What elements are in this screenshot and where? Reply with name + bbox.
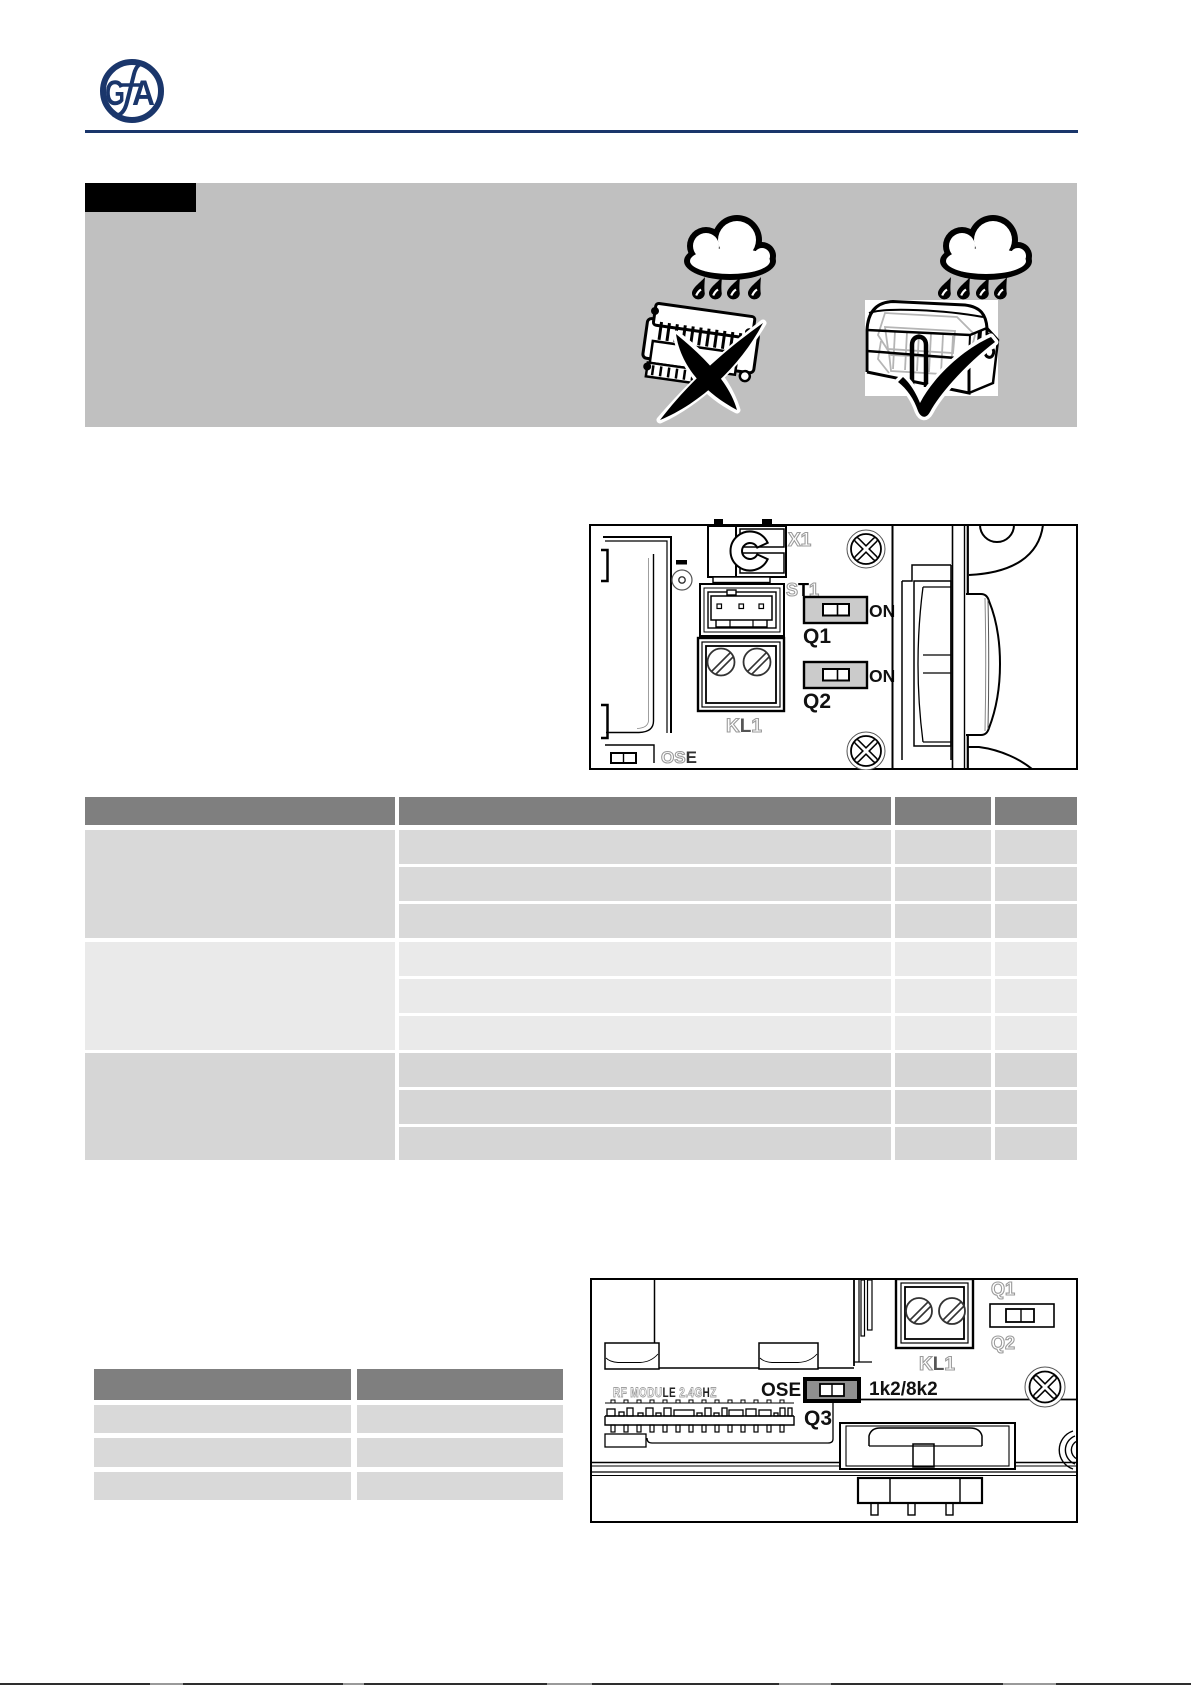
svg-text:ON: ON bbox=[869, 601, 895, 621]
svg-text:Q3: Q3 bbox=[804, 1407, 832, 1430]
svg-text:Q2: Q2 bbox=[991, 1333, 1015, 1353]
svg-text:OSE: OSE bbox=[661, 748, 697, 767]
svg-text:RF MODULE 2.4GHZ: RF MODULE 2.4GHZ bbox=[613, 1384, 717, 1400]
svg-text:KL1: KL1 bbox=[919, 1354, 955, 1375]
svg-text:A: A bbox=[132, 74, 155, 113]
svg-text:Q1: Q1 bbox=[803, 625, 831, 648]
svg-text:KL1: KL1 bbox=[726, 716, 762, 737]
svg-text:Q1: Q1 bbox=[991, 1279, 1015, 1299]
svg-text:OSE: OSE bbox=[761, 1380, 801, 1401]
svg-text:1k2/8k2: 1k2/8k2 bbox=[869, 1379, 938, 1400]
svg-text:ON: ON bbox=[869, 666, 895, 686]
svg-text:X1: X1 bbox=[788, 530, 812, 551]
svg-text:Q2: Q2 bbox=[803, 690, 831, 713]
svg-text:G: G bbox=[105, 74, 125, 113]
